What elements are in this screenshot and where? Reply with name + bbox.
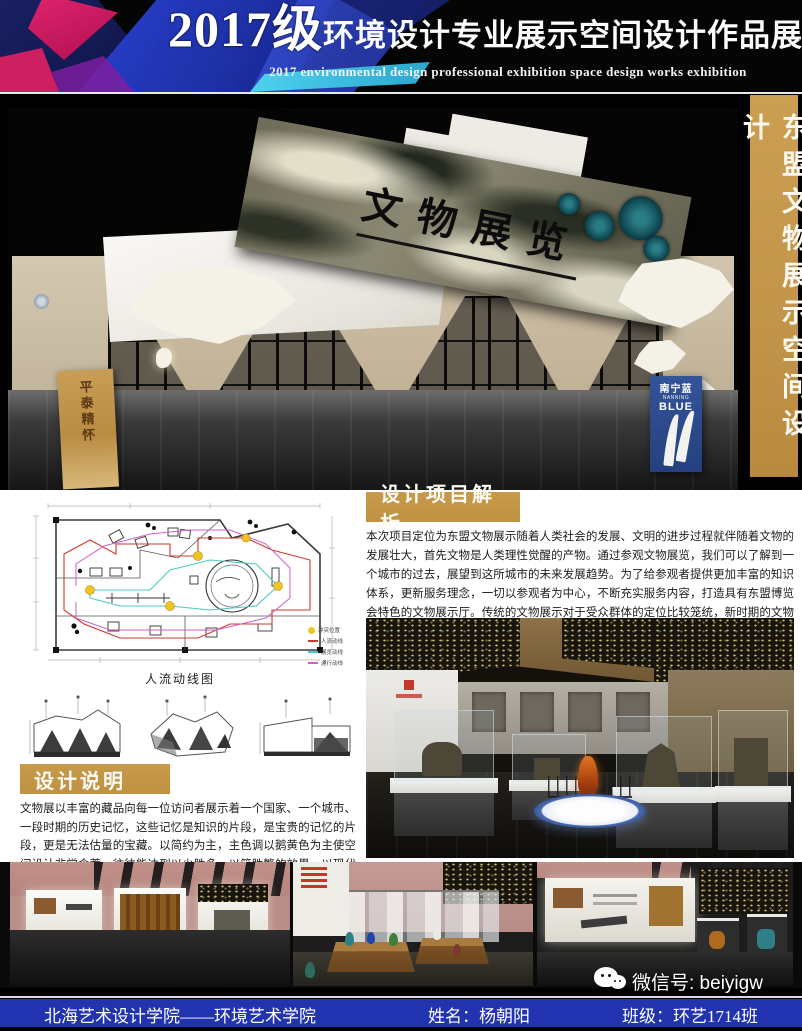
blue-banner-cn: 南宁蓝	[650, 380, 702, 395]
text-line	[593, 902, 637, 905]
side-title-vertical-text: 东盟文物展示空间设计	[735, 113, 802, 477]
sketch-elevation-1	[22, 694, 128, 764]
artifact	[66, 904, 92, 910]
title-year: 2017级	[168, 4, 323, 54]
artifact-panel	[649, 886, 683, 926]
vase-floor	[305, 962, 315, 978]
side-title-banner: 东盟文物展示空间设计	[750, 95, 798, 477]
footer-class-name: 班级：环艺1714班	[622, 1002, 758, 1027]
text-line	[593, 894, 637, 897]
display-niche	[568, 692, 602, 732]
render-wall-logo	[34, 294, 49, 309]
signboard-title: 文物展览	[356, 172, 588, 280]
title-chinese: 环境设计专业展示空间设计作品展	[323, 18, 802, 54]
legend-label: 通行动线	[321, 659, 343, 667]
wooden-table	[415, 938, 489, 964]
wooden-table	[327, 942, 415, 972]
vase-green	[389, 933, 398, 946]
artifact-frame	[553, 888, 583, 908]
wechat-watermark: 微信号: beiyigw	[594, 964, 800, 998]
lit-display-wall	[545, 878, 695, 942]
display-niche	[520, 692, 554, 732]
header-divider-line	[0, 92, 802, 94]
artifact-sword	[581, 916, 628, 929]
patterned-canopy	[699, 868, 789, 914]
artifact	[34, 898, 56, 914]
analysis-heading-badge: 设计项目解析	[366, 492, 520, 522]
legend-item: 通行动线	[308, 659, 360, 667]
legend-item: 人流动线	[308, 637, 360, 645]
teal-artifact	[757, 929, 775, 949]
gold-standing-banner: 平泰精怀	[57, 369, 119, 490]
floor-plan-figure: 人流动线图 冲突位置 人流动线 展览动线 通行动线	[20, 498, 358, 690]
artifact	[734, 738, 768, 786]
gold-banner-text: 平泰精怀	[75, 380, 97, 445]
exhibitor-logo-mark	[404, 680, 414, 690]
axonometric-sketches	[22, 694, 358, 764]
exhibition-poster: 2017级 环境设计专业展示空间设计作品展 2017 environmental…	[0, 0, 802, 1031]
vase-blue	[367, 932, 375, 944]
title-english-subtitle: 2017 environmental design professional e…	[238, 64, 778, 80]
header: 2017级 环境设计专业展示空间设计作品展 2017 environmental…	[0, 0, 802, 94]
footer-bar: 北海艺术设计学院——环境艺术学院 姓名：杨朝阳 班级：环艺1714班	[0, 999, 802, 1027]
vase-brown	[453, 944, 461, 956]
exhibitor-logo-text	[396, 694, 422, 698]
render-thumbnail-2	[293, 862, 533, 986]
poster-title: 2017级 环境设计专业展示空间设计作品展	[168, 4, 788, 54]
wechat-eye	[608, 974, 611, 977]
artifact	[422, 742, 462, 776]
hero-exhibition-render: 文物展览 平泰精怀 南宁蓝 NANNING BLUE	[8, 108, 738, 490]
legend-line-icon	[308, 640, 318, 642]
bronze-medallion-icon	[582, 208, 617, 243]
wechat-eye	[614, 980, 616, 982]
vitrine-base	[394, 788, 494, 836]
footer-school-name: 北海艺术设计学院——环境艺术学院	[44, 1002, 316, 1027]
floor-plan-caption: 人流动线图	[110, 670, 250, 687]
amber-vase-artifact	[578, 756, 598, 796]
vase-teal	[345, 932, 354, 946]
legend-dot-icon	[308, 627, 315, 634]
patterned-canopy	[198, 884, 268, 902]
amber-artifact	[709, 931, 725, 949]
display-vitrine	[394, 710, 494, 836]
display-vitrine	[718, 710, 788, 850]
legend-line-icon	[308, 651, 318, 653]
interior-render	[366, 618, 794, 858]
sketch-axonometric-2	[137, 694, 243, 764]
description-heading-badge: 设计说明	[20, 764, 170, 794]
legend-item: 冲突位置	[308, 626, 360, 634]
footer-author-name: 姓名：杨朝阳	[428, 1002, 530, 1027]
legend-label: 冲突位置	[318, 626, 340, 634]
wechat-eye	[619, 980, 621, 982]
porcelain-platform	[534, 794, 646, 828]
sketch-elevation-3	[252, 694, 358, 764]
render-thumbnail-1	[10, 862, 290, 986]
wechat-eye	[601, 974, 604, 977]
red-text-block	[301, 867, 327, 889]
vitrine-base	[718, 797, 788, 850]
content-section: 人流动线图 冲突位置 人流动线 展览动线 通行动线	[0, 490, 802, 862]
legend-label: 展览动线	[321, 648, 343, 656]
vase-white	[433, 928, 441, 940]
artifact-mural	[120, 894, 180, 930]
artifact	[214, 910, 250, 932]
floor-plan-legend: 冲突位置 人流动线 展览动线 通行动线	[308, 626, 360, 670]
legend-item: 展览动线	[308, 648, 360, 656]
wechat-id-text: 微信号: beiyigw	[632, 968, 763, 995]
glossy-floor	[10, 930, 290, 986]
wechat-icon	[594, 967, 626, 995]
legend-label: 人流动线	[321, 637, 343, 645]
wechat-bubble-small	[610, 975, 626, 989]
legend-line-icon	[308, 662, 318, 664]
description-heading: 设计说明	[34, 765, 126, 794]
blue-standing-banner: 南宁蓝 NANNING BLUE	[650, 376, 702, 472]
